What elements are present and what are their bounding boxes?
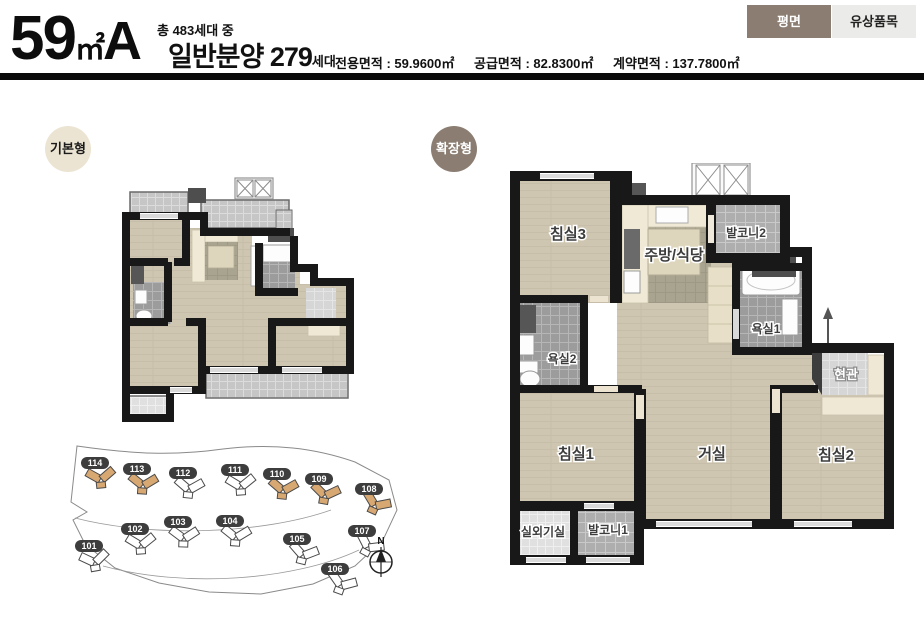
building-label: 111: [228, 465, 242, 475]
page-title: 59㎡A: [10, 6, 140, 72]
area-supply: 공급면적 : 82.8300㎡: [474, 56, 593, 71]
extended-type-badge: 확장형: [431, 126, 477, 172]
general-sale-suffix: 세대: [312, 54, 336, 69]
basic-floor-plan: [108, 166, 408, 428]
room-label-bath1: 욕실1: [752, 321, 781, 336]
room-label-balcony2: 발코니2: [726, 225, 766, 240]
room-label-entrance: 현관: [834, 367, 858, 382]
building-label: 101: [81, 541, 96, 551]
title-size-number: 59: [10, 4, 75, 73]
room-label-balcony1: 발코니1: [588, 522, 628, 537]
title-size-variant: A: [103, 11, 140, 71]
title-size-unit: ㎡: [75, 33, 103, 66]
building-label: 112: [176, 468, 191, 478]
room-label-bedroom1: 침실1: [558, 446, 594, 463]
building-label: 106: [327, 564, 342, 574]
building-label: 104: [222, 516, 237, 526]
general-sale-text: 일반분양 279세대: [168, 35, 336, 74]
building-label: 103: [170, 517, 185, 527]
room-label-outdoor-unit: 실외기실: [521, 524, 565, 539]
area-contract: 계약면적 : 137.7800㎡: [613, 56, 740, 71]
site-map: 114 113 112 111 110 109 108 101 102 103 …: [63, 438, 403, 616]
extended-floor-plan: 침실3 주방/식당 발코니2 욕실1 욕실2 현관 침실1 거실 침실2 실외기…: [506, 163, 916, 613]
room-label-kitchen: 주방/식당: [644, 246, 704, 264]
building-label: 105: [289, 534, 304, 544]
building-label: 113: [130, 464, 145, 474]
room-label-living: 거실: [698, 446, 726, 463]
tab-floorplan[interactable]: 평면: [747, 5, 831, 38]
building-label: 102: [127, 524, 142, 534]
extended-plan-elevator: [692, 163, 750, 197]
header-divider-bar: [0, 73, 924, 80]
room-label-bath2: 욕실2: [548, 351, 577, 366]
compass-n-label: N: [377, 536, 384, 547]
general-sale-main: 일반분양 279: [168, 42, 312, 72]
building-label: 114: [88, 458, 103, 468]
view-tabs: 평면 유상품목: [747, 5, 916, 38]
tab-paid-options[interactable]: 유상품목: [832, 5, 916, 38]
room-label-bedroom3: 침실3: [550, 226, 586, 243]
area-info: 전용면적 : 59.9600㎡ 공급면적 : 82.8300㎡ 계약면적 : 1…: [335, 53, 756, 72]
building-label: 110: [270, 469, 285, 479]
basic-plan-elevator: [235, 178, 273, 199]
room-label-bedroom2: 침실2: [818, 447, 854, 464]
floorplan-page: { "header": { "size_number": "59", "size…: [0, 0, 924, 619]
building-label: 107: [354, 526, 369, 536]
area-exclusive: 전용면적 : 59.9600㎡: [335, 56, 454, 71]
building-label: 108: [361, 484, 376, 494]
building-label: 109: [311, 474, 326, 484]
basic-type-badge: 기본형: [45, 126, 91, 172]
